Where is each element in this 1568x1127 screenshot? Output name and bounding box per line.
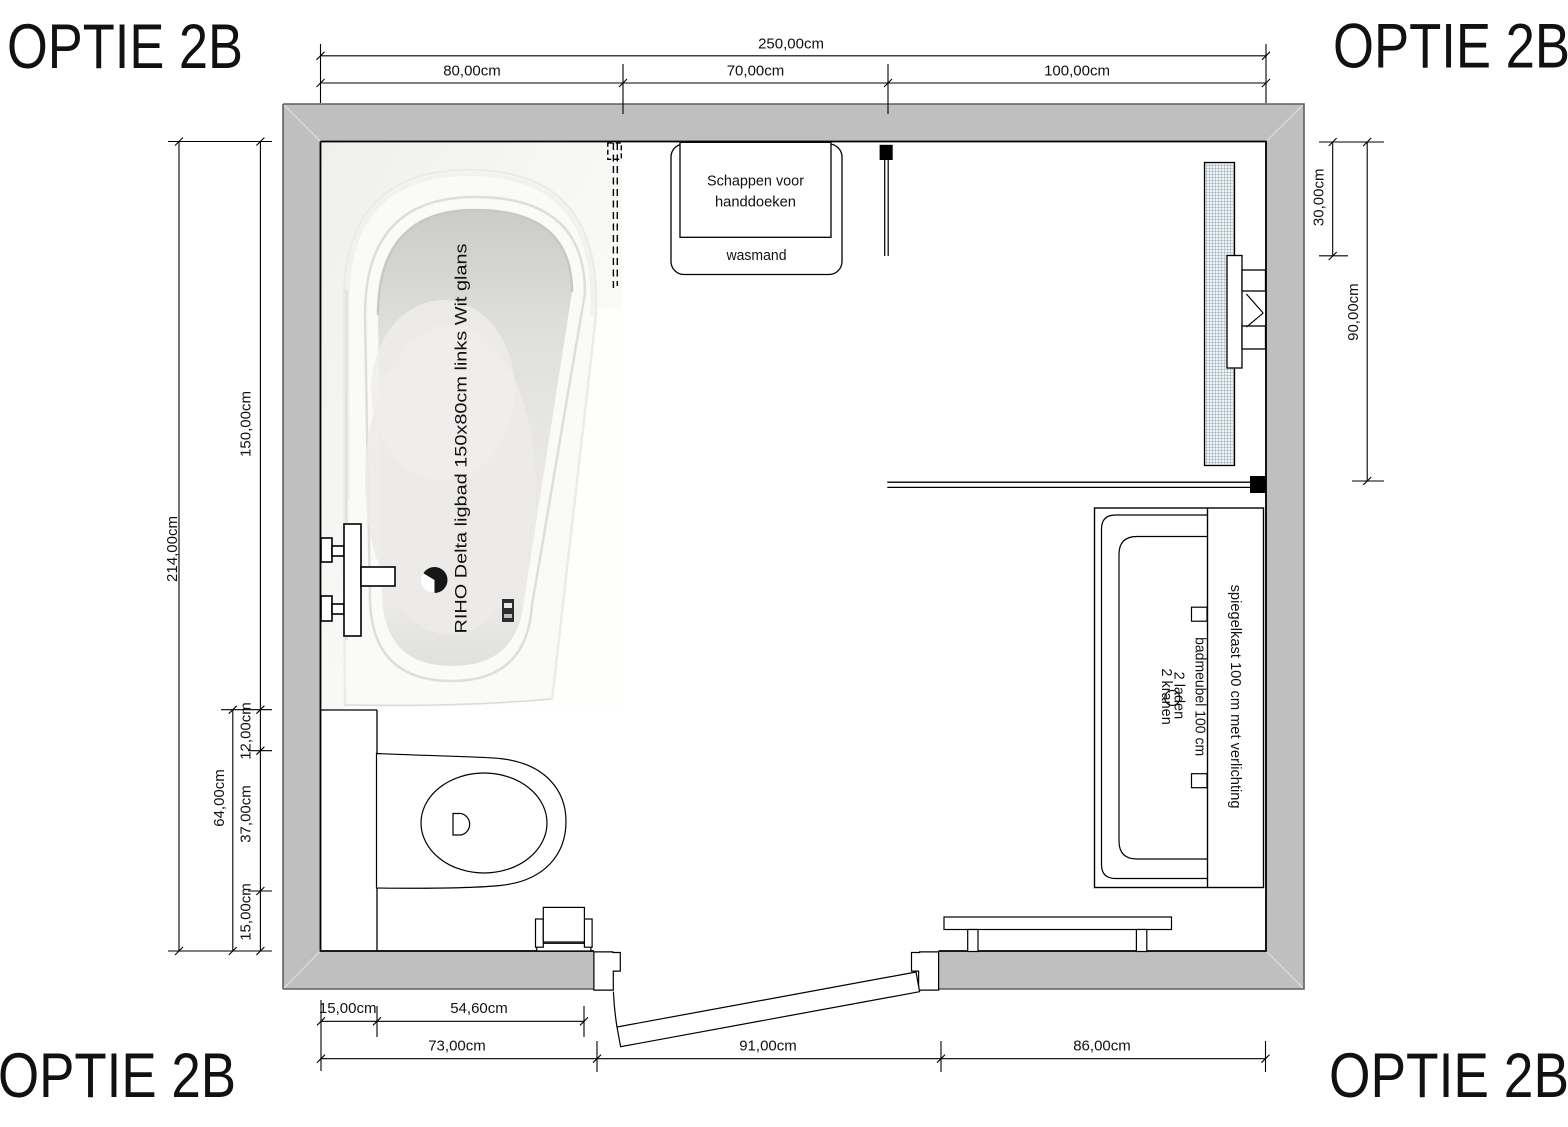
svg-text:12,00cm: 12,00cm <box>238 702 255 760</box>
svg-text:wasmand: wasmand <box>726 247 787 264</box>
svg-text:91,00cm: 91,00cm <box>739 1038 797 1055</box>
svg-text:100,00cm: 100,00cm <box>1044 63 1110 80</box>
svg-text:30,00cm: 30,00cm <box>1311 169 1328 227</box>
svg-text:handdoeken: handdoeken <box>715 194 796 211</box>
svg-text:15,00cm: 15,00cm <box>238 883 255 941</box>
svg-text:2 kranen: 2 kranen <box>1158 668 1174 724</box>
svg-text:OPTIE 2B: OPTIE 2B <box>1329 1041 1568 1111</box>
svg-text:90,00cm: 90,00cm <box>1345 283 1362 341</box>
svg-text:150,00cm: 150,00cm <box>238 391 255 457</box>
svg-text:86,00cm: 86,00cm <box>1073 1038 1131 1055</box>
svg-text:214,00cm: 214,00cm <box>164 516 181 582</box>
svg-text:OPTIE 2B: OPTIE 2B <box>1333 12 1568 82</box>
svg-text:54,60cm: 54,60cm <box>450 1000 508 1017</box>
svg-text:250,00cm: 250,00cm <box>758 36 824 53</box>
svg-text:15,00cm: 15,00cm <box>319 1000 377 1017</box>
svg-text:OPTIE 2B: OPTIE 2B <box>7 12 243 82</box>
svg-text:64,00cm: 64,00cm <box>211 769 228 827</box>
svg-text:badmeubel 100 cm: badmeubel 100 cm <box>1192 637 1208 756</box>
svg-text:37,00cm: 37,00cm <box>238 785 255 843</box>
svg-text:OPTIE 2B: OPTIE 2B <box>0 1041 236 1111</box>
svg-text:spiegelkast 100 cm met verlich: spiegelkast 100 cm met verlichting <box>1227 585 1243 809</box>
svg-text:Schappen voor: Schappen voor <box>707 173 804 190</box>
svg-text:73,00cm: 73,00cm <box>428 1038 486 1055</box>
svg-text:80,00cm: 80,00cm <box>443 63 501 80</box>
svg-text:70,00cm: 70,00cm <box>727 63 785 80</box>
svg-text:RIHO Delta ligbad 150x80cm lin: RIHO Delta ligbad 150x80cm links Wit gla… <box>453 243 471 633</box>
